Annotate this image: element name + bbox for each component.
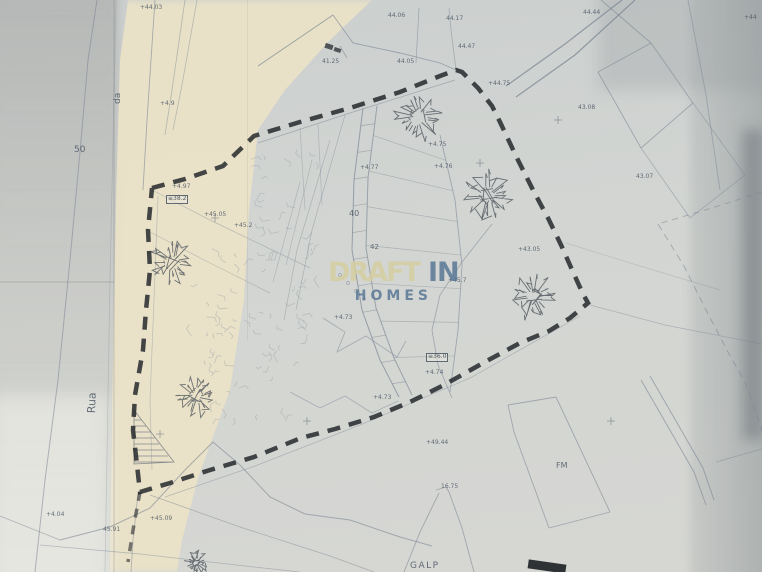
elevation-label: +4.73 [373, 395, 391, 401]
elevation-label: 43.07 [636, 174, 653, 180]
parcel-number-label: 40 [349, 210, 359, 218]
elevation-label: 44.47 [458, 44, 475, 50]
watermark-draft-in-homes: DRAFT IN HOMES [328, 259, 432, 303]
elevation-label: +4.73 [334, 315, 352, 321]
elevation-label: +43.05 [518, 247, 540, 253]
parcel-label-fm: FM [556, 462, 568, 470]
watermark-row-2: HOMES [328, 289, 432, 303]
site-plan-photo: +44.03da+4.950Rua41.2544.0644.1744.4744.… [0, 0, 762, 572]
elevation-label: +45.09 [150, 516, 172, 522]
elevation-label: +49.44 [426, 440, 448, 446]
elevation-label: +45.2 [234, 223, 252, 229]
elevation-label: 41.25 [322, 59, 339, 65]
road-number-label: 50 [74, 146, 85, 155]
elevation-label: +4.75 [428, 142, 446, 148]
elevation-label: +4.74 [425, 370, 443, 376]
elevation-label: 44.44 [583, 10, 600, 16]
street-label-da: da [114, 93, 123, 104]
elevation-label: +44.75 [488, 81, 510, 87]
elevation-label: +4.76 [434, 164, 452, 170]
elevation-label: +44 [744, 15, 757, 21]
street-label-rua: Rua [86, 392, 98, 413]
elevation-label: +4.9 [160, 101, 175, 107]
elevation-label: +4.97 [172, 184, 190, 190]
parcel-label-galp: GALP [410, 562, 440, 571]
elevation-label: 45.91 [103, 527, 120, 533]
elevation-label: +4.77 [360, 165, 378, 171]
elevation-label: 43.08 [578, 105, 595, 111]
boxed-elevation-label: ≡38.2 [166, 195, 188, 204]
watermark-in-text: IN [428, 259, 459, 286]
elevation-label: 44.06 [388, 13, 405, 19]
elevation-label: +44.03 [140, 5, 162, 11]
parcel-number-label: 42 [370, 244, 379, 251]
boxed-elevation-label: ≡36.0 [426, 353, 448, 362]
elevation-label: 44.05 [397, 59, 414, 65]
elevation-label: +45.05 [204, 212, 226, 218]
watermark-draft-text: DRAFT [328, 259, 419, 286]
elevation-label: 44.17 [446, 16, 463, 22]
watermark-row-1: DRAFT IN [328, 259, 432, 286]
elevation-label: 16.75 [441, 484, 458, 490]
elevation-label: +4.04 [46, 512, 64, 518]
watermark-homes-text: HOMES [355, 289, 432, 303]
